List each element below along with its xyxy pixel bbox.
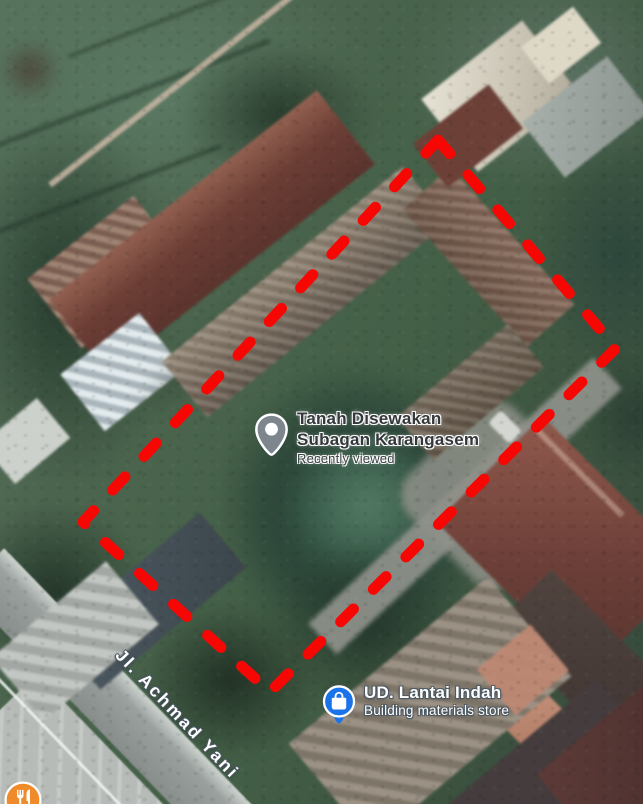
property-title-line2[interactable]: Subagan Karangasem (297, 429, 479, 450)
store-name-label[interactable]: UD. Lantai Indah (364, 683, 509, 703)
property-poi[interactable]: Tanah Disewakan Subagan Karangasem Recen… (254, 413, 479, 467)
satellite-imagery (0, 0, 643, 804)
store-category-label: Building materials store (364, 703, 509, 719)
tree-clump-brown (0, 40, 60, 100)
property-pin-icon[interactable] (254, 413, 289, 457)
map-canvas[interactable]: Tanah Disewakan Subagan Karangasem Recen… (0, 0, 643, 804)
restaurant-poi-icon[interactable] (4, 781, 42, 804)
property-title-line1[interactable]: Tanah Disewakan (297, 408, 479, 429)
store-poi[interactable]: UD. Lantai Indah Building materials stor… (322, 685, 509, 725)
store-pin-icon[interactable] (322, 685, 356, 725)
property-status: Recently viewed (297, 451, 479, 467)
